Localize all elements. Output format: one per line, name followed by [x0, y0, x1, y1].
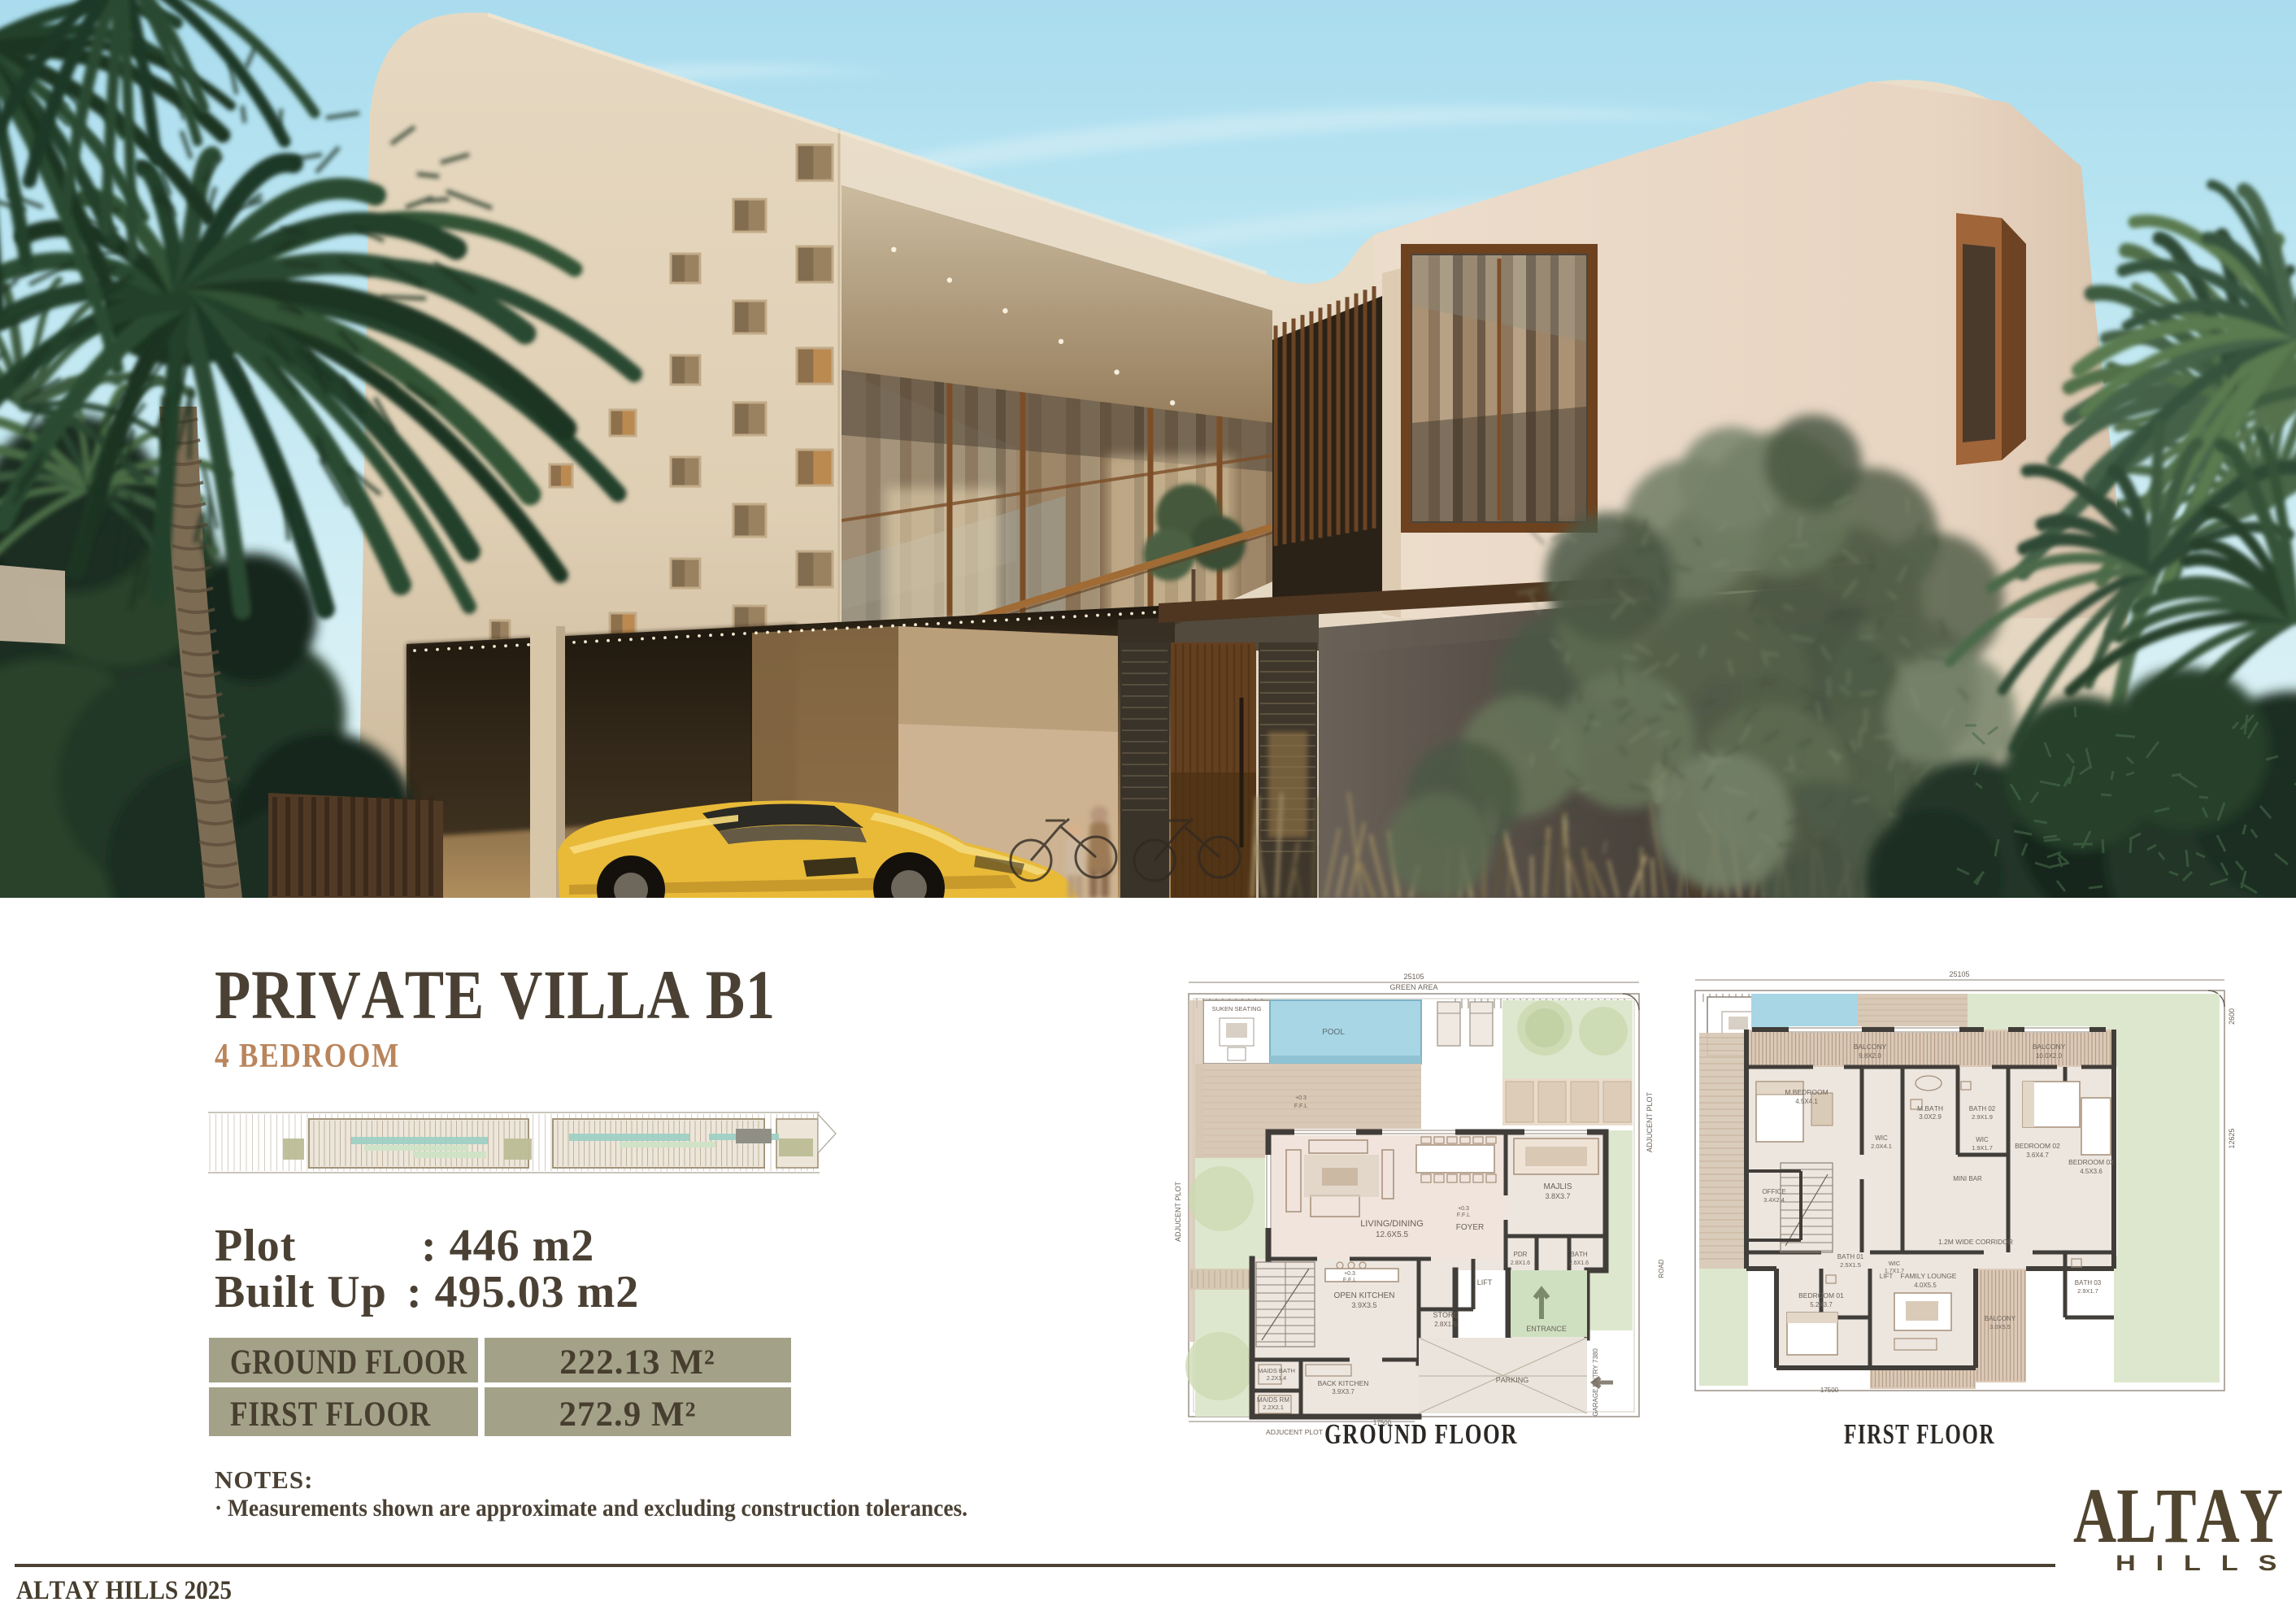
svg-text:BALCONY: BALCONY: [1854, 1043, 1887, 1051]
svg-text:2.2X1.4: 2.2X1.4: [1267, 1376, 1286, 1382]
svg-text:MAIDS BATH: MAIDS BATH: [1258, 1367, 1295, 1374]
svg-text:9.8X2.0: 9.8X2.0: [1859, 1052, 1881, 1060]
svg-text:WIC: WIC: [1875, 1134, 1888, 1142]
svg-text:M.BATH: M.BATH: [1917, 1104, 1943, 1112]
svg-text:222.13 M²: 222.13 M²: [559, 1343, 715, 1382]
svg-text:WIC: WIC: [1889, 1260, 1901, 1267]
svg-text:+0.3: +0.3: [1344, 1271, 1355, 1277]
svg-text:12.6X5.5: 12.6X5.5: [1376, 1230, 1408, 1239]
svg-text:ENTRANCE: ENTRANCE: [1526, 1325, 1567, 1333]
svg-text:BEDROOM 01: BEDROOM 01: [1798, 1291, 1844, 1300]
svg-text:5.2X3.7: 5.2X3.7: [1810, 1301, 1833, 1308]
svg-text:272.9 M²: 272.9 M²: [559, 1395, 697, 1434]
svg-text:ALTAY: ALTAY: [2073, 1472, 2283, 1559]
svg-text:PDR: PDR: [1514, 1251, 1528, 1258]
svg-text:ADJUCENT PLOT: ADJUCENT PLOT: [1646, 1091, 1654, 1152]
svg-text:ROAD: ROAD: [1658, 1259, 1665, 1278]
svg-text:BATH 01: BATH 01: [1837, 1253, 1864, 1260]
svg-text:GREEN AREA: GREEN AREA: [1389, 983, 1437, 991]
svg-text:Plot: Plot: [215, 1221, 296, 1271]
svg-text:SUKEN SEATING: SUKEN SEATING: [1212, 1005, 1262, 1012]
svg-text:4.5X4.1: 4.5X4.1: [1795, 1098, 1818, 1105]
svg-text:BATH 02: BATH 02: [1969, 1105, 1996, 1112]
svg-text:2.6X1.6: 2.6X1.6: [1569, 1260, 1589, 1266]
svg-text:FIRST FLOOR: FIRST FLOOR: [230, 1395, 431, 1434]
svg-text:F.F.L: F.F.L: [1457, 1213, 1470, 1218]
svg-text:BALCONY: BALCONY: [2033, 1043, 2066, 1051]
svg-text:2.0X4.1: 2.0X4.1: [1871, 1143, 1892, 1150]
svg-text:10.0X2.0: 10.0X2.0: [2036, 1052, 2063, 1060]
svg-text:FAMILY LOUNGE: FAMILY LOUNGE: [1901, 1272, 1957, 1280]
svg-text:3.6X4.7: 3.6X4.7: [2026, 1152, 2049, 1159]
svg-text:17500: 17500: [1820, 1387, 1839, 1394]
svg-text:2.2X2.1: 2.2X2.1: [1263, 1404, 1284, 1411]
svg-text:2.8X1.6: 2.8X1.6: [1511, 1260, 1530, 1266]
svg-text:WIC: WIC: [1976, 1136, 1989, 1143]
svg-text:3.9X3.7: 3.9X3.7: [1332, 1388, 1355, 1395]
svg-text:BALCONY: BALCONY: [1985, 1315, 2016, 1322]
svg-text:GROUND FLOOR: GROUND FLOOR: [1324, 1418, 1518, 1450]
svg-text:STORE: STORE: [1433, 1311, 1458, 1319]
svg-text:12625: 12625: [2228, 1128, 2236, 1148]
svg-text:25105: 25105: [1949, 970, 1969, 978]
svg-text:FIRST FLOOR: FIRST FLOOR: [1844, 1418, 1995, 1450]
svg-text:F.F.L: F.F.L: [1294, 1104, 1307, 1109]
svg-text:BEDROOM 03: BEDROOM 03: [2068, 1158, 2114, 1166]
svg-text:ADJUCENT PLOT: ADJUCENT PLOT: [1266, 1428, 1323, 1436]
svg-text:4.5X3.6: 4.5X3.6: [2080, 1168, 2102, 1175]
svg-text:2600: 2600: [2228, 1008, 2236, 1025]
svg-text:+0.3: +0.3: [1458, 1206, 1469, 1212]
svg-text:2.5X1.5: 2.5X1.5: [1840, 1261, 1861, 1269]
svg-text:M.BEDROOM: M.BEDROOM: [1785, 1088, 1828, 1096]
svg-text:25105: 25105: [1403, 973, 1424, 981]
svg-text:F.F.L: F.F.L: [1343, 1278, 1356, 1283]
svg-text:3.0X2.9: 3.0X2.9: [1919, 1113, 1942, 1121]
svg-text:ADJUCENT PLOT: ADJUCENT PLOT: [1174, 1181, 1182, 1242]
svg-text:LIVING/DINING: LIVING/DINING: [1360, 1219, 1424, 1229]
svg-text:BEDROOM 02: BEDROOM 02: [2015, 1142, 2060, 1150]
svg-text:ALTAY HILLS 2025: ALTAY HILLS 2025: [16, 1576, 232, 1605]
svg-text:GARAGE ENTRY 7380: GARAGE ENTRY 7380: [1592, 1348, 1599, 1417]
svg-text:MINI BAR: MINI BAR: [1953, 1175, 1982, 1182]
svg-text:1.2M WIDE CORRIDOR: 1.2M WIDE CORRIDOR: [1938, 1238, 2013, 1246]
svg-text:MAIDS RM: MAIDS RM: [1257, 1396, 1289, 1404]
svg-text:OFFICE: OFFICE: [1762, 1188, 1785, 1195]
svg-text:2.9X1.9: 2.9X1.9: [1972, 1113, 1993, 1121]
svg-text:· Measurements shown are appro: · Measurements shown are approximate and…: [215, 1495, 968, 1522]
svg-text:LIFT: LIFT: [1477, 1278, 1493, 1287]
svg-text:Built Up: Built Up: [215, 1267, 387, 1317]
svg-text:GROUND FLOOR: GROUND FLOOR: [230, 1343, 467, 1382]
svg-text:3.8X3.7: 3.8X3.7: [1545, 1192, 1570, 1200]
svg-text:4 BEDROOM: 4 BEDROOM: [215, 1038, 400, 1075]
svg-text:BACK KITCHEN: BACK KITCHEN: [1318, 1379, 1369, 1387]
svg-text:17500: 17500: [1373, 1419, 1392, 1426]
svg-text:3.9X3.5: 3.9X3.5: [1351, 1301, 1376, 1309]
svg-text:2.9X1.7: 2.9X1.7: [2077, 1287, 2098, 1295]
svg-text:PRIVATE VILLA B1: PRIVATE VILLA B1: [215, 956, 776, 1034]
svg-text:OPEN KITCHEN: OPEN KITCHEN: [1333, 1291, 1394, 1300]
svg-text:H I L L S: H I L L S: [2116, 1551, 2283, 1575]
svg-text:BATH 03: BATH 03: [2075, 1279, 2102, 1287]
svg-text:MAJLIS: MAJLIS: [1543, 1182, 1572, 1191]
svg-text:: 446 m2: : 446 m2: [421, 1221, 594, 1271]
svg-text:1.9X1.7: 1.9X1.7: [1972, 1144, 1993, 1152]
svg-text:+0.3: +0.3: [1295, 1095, 1307, 1101]
svg-text:2.8X1.5: 2.8X1.5: [1434, 1321, 1457, 1328]
svg-text:NOTES:: NOTES:: [215, 1465, 313, 1494]
svg-text:4.0X5.5: 4.0X5.5: [1914, 1282, 1937, 1289]
svg-text:3.0X5.5: 3.0X5.5: [1989, 1323, 2011, 1330]
svg-text:BATH: BATH: [1570, 1251, 1588, 1258]
svg-text:PARKING: PARKING: [1496, 1376, 1529, 1384]
svg-text:: 495.03 m2: : 495.03 m2: [407, 1267, 639, 1317]
svg-text:3.4X2.4: 3.4X2.4: [1763, 1196, 1785, 1204]
svg-text:FOYER: FOYER: [1456, 1223, 1484, 1232]
svg-text:POOL: POOL: [1322, 1028, 1345, 1037]
